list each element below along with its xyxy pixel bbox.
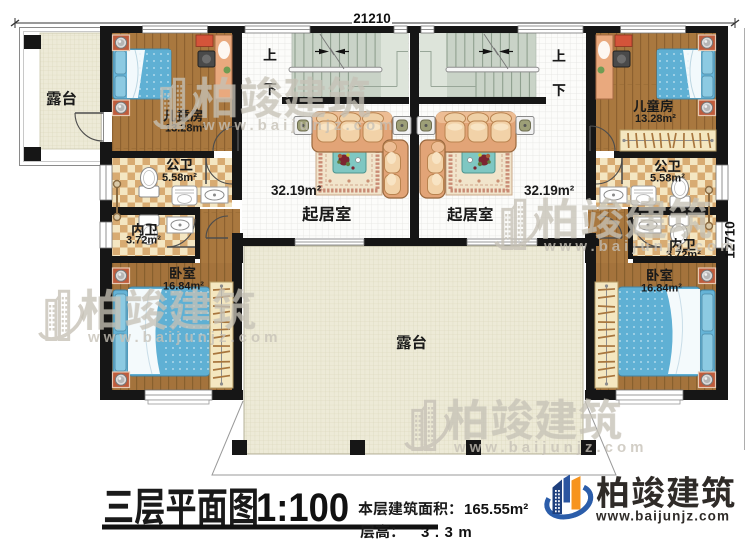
svg-text:16.84m²: 16.84m² — [163, 281, 204, 293]
svg-text:32.19m²: 32.19m² — [524, 183, 575, 198]
svg-text:165.55m²: 165.55m² — [464, 501, 528, 518]
svg-text:13.28m²: 13.28m² — [635, 113, 676, 125]
svg-text:www.baijunjz.com: www.baijunjz.com — [202, 117, 396, 134]
svg-text:5.58m²: 5.58m² — [162, 172, 197, 184]
svg-text:www.baijunjz.com: www.baijunjz.com — [543, 238, 737, 255]
svg-text:21210: 21210 — [353, 11, 391, 26]
svg-text:16.84m²: 16.84m² — [641, 283, 682, 295]
svg-text:3.72m²: 3.72m² — [126, 235, 161, 247]
svg-text:5.58m²: 5.58m² — [650, 173, 685, 185]
svg-text:www.baijunjz.com: www.baijunjz.com — [87, 329, 281, 346]
svg-text:www.baijunjz.com: www.baijunjz.com — [453, 439, 647, 456]
svg-text:www.baijunjz.com: www.baijunjz.com — [595, 509, 730, 524]
svg-text:3.3m: 3.3m — [421, 524, 477, 540]
svg-text:32.19m²: 32.19m² — [271, 183, 322, 198]
svg-text:1:100: 1:100 — [256, 485, 349, 530]
